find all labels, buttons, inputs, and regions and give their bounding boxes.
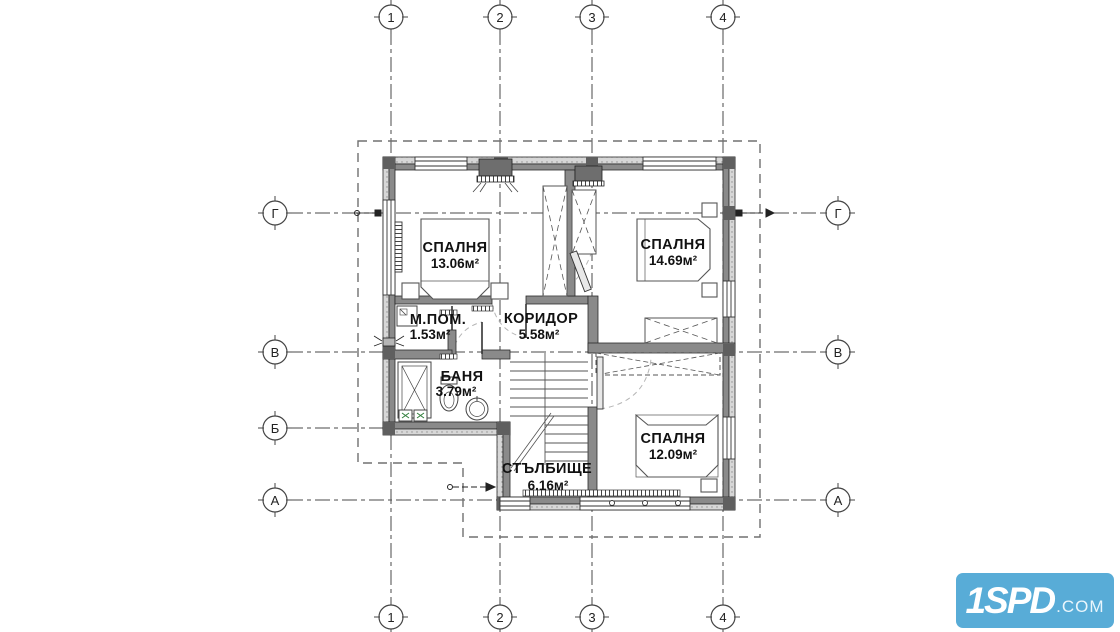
axis-marker-col2-bottom: 2 (483, 600, 517, 632)
window-right-bedroom2 (723, 281, 735, 317)
room-label-bathroom: БАНЯ 3.79м² (436, 369, 484, 399)
watermark-suffix: .COM (1056, 597, 1104, 617)
axis-marker-col4-bottom: 4 (706, 600, 740, 632)
room-area: 12.09м² (649, 447, 698, 462)
svg-text:Б: Б (271, 421, 280, 436)
window-right-bedroom3 (723, 417, 735, 459)
room-area: 13.06м² (431, 256, 480, 271)
room-area: 14.69м² (649, 253, 698, 268)
window-bottom-bedroom3 (580, 497, 690, 510)
room-area: 1.53м² (410, 327, 451, 342)
window-bedroom1-top (415, 157, 467, 170)
axis-marker-col3-top: 3 (575, 0, 609, 34)
door-bedroom3 (597, 357, 603, 409)
svg-text:2: 2 (496, 610, 503, 625)
svg-text:В: В (271, 345, 280, 360)
sink (466, 396, 488, 420)
svg-text:2: 2 (496, 10, 503, 25)
wardrobe-bedroom2 (645, 318, 717, 343)
svg-text:3: 3 (588, 610, 595, 625)
floor-plan-page: СПАЛНЯ 13.06м² СПАЛНЯ 14.69м² М.ПОМ. 1.5… (0, 0, 1120, 632)
room-label-bedroom1: СПАЛНЯ 13.06м² (422, 240, 487, 271)
axis-marker-row-v-left: В (258, 335, 292, 369)
room-label-bedroom3: СПАЛНЯ 12.09м² (640, 431, 705, 462)
svg-text:Г: Г (834, 206, 841, 221)
room-label-corridor: КОРИДОР 5.58м² (504, 311, 578, 342)
window-bottom-staircase (500, 497, 530, 510)
svg-text:А: А (834, 493, 843, 508)
room-name: БАНЯ (441, 369, 484, 385)
axis-marker-row-a-left: А (258, 483, 292, 517)
room-area: 5.58м² (519, 327, 560, 342)
axis-marker-col1-bottom: 1 (374, 600, 408, 632)
svg-text:Г: Г (271, 206, 278, 221)
axis-marker-col1-top: 1 (374, 0, 408, 34)
axis-g-right-mark (736, 209, 774, 217)
wardrobe-right (572, 190, 596, 254)
room-name: СПАЛНЯ (422, 240, 487, 256)
svg-text:А: А (271, 493, 280, 508)
svg-text:1: 1 (387, 10, 394, 25)
axis-marker-col2-top: 2 (483, 0, 517, 34)
wardrobe-builtin-bedroom3 (596, 353, 720, 375)
floor-plan-drawing: СПАЛНЯ 13.06м² СПАЛНЯ 14.69м² М.ПОМ. 1.5… (0, 0, 1120, 632)
entry-arrow-staircase (448, 483, 496, 491)
axis-marker-col3-bottom: 3 (575, 600, 609, 632)
axis-marker-row-g-left: Г (258, 196, 292, 230)
axis-marker-row-v-right: В (821, 335, 855, 369)
axis-marker-row-a-right: А (821, 483, 855, 517)
axis-marker-row-g-right: Г (821, 196, 855, 230)
svg-text:3: 3 (588, 10, 595, 25)
window-bedroom2-top (643, 157, 716, 170)
watermark-brand: 1SPD (965, 582, 1054, 619)
room-label-bedroom2: СПАЛНЯ 14.69м² (640, 237, 705, 268)
axis-g-left-mark (355, 210, 382, 216)
axis-marker-row-b-left: Б (258, 411, 292, 445)
svg-text:4: 4 (719, 10, 726, 25)
room-area: 6.16м² (528, 478, 569, 493)
room-name: СПАЛНЯ (640, 237, 705, 253)
room-area: 3.79м² (436, 384, 477, 399)
axis-marker-col4-top: 4 (706, 0, 740, 34)
room-name: М.ПОМ. (410, 312, 466, 328)
staircase (510, 353, 588, 471)
room-name: СПАЛНЯ (640, 431, 705, 447)
window-left-wall (383, 200, 402, 295)
wardrobe-left (543, 186, 567, 296)
room-name: СТЪЛБИЩЕ (502, 461, 592, 477)
svg-text:4: 4 (719, 610, 726, 625)
room-label-utility: М.ПОМ. 1.53м² (410, 312, 467, 342)
room-name: КОРИДОР (504, 311, 578, 327)
svg-text:В: В (834, 345, 843, 360)
svg-text:1: 1 (387, 610, 394, 625)
room-label-staircase: СТЪЛБИЩЕ 6.16м² (502, 461, 592, 493)
watermark-logo: 1SPD .COM (956, 573, 1114, 628)
